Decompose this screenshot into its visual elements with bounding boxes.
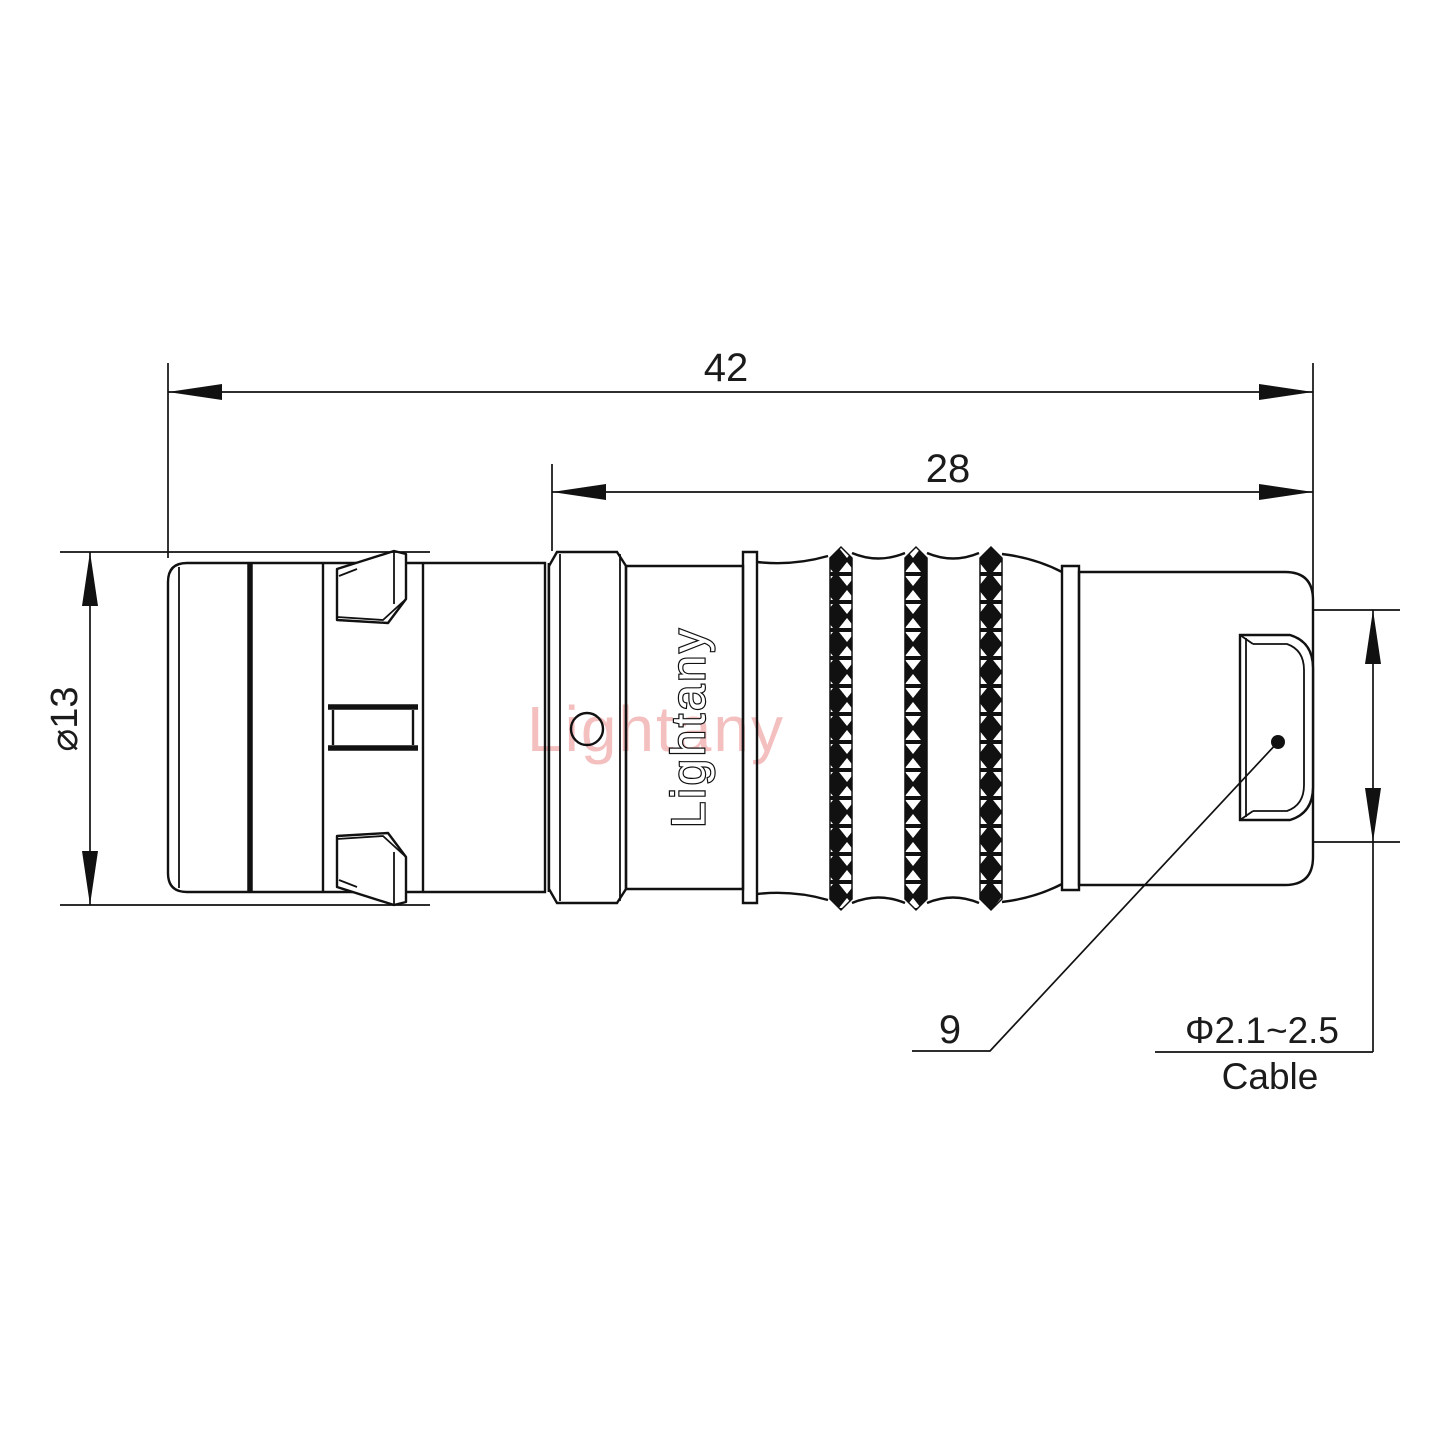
arrow-down-icon	[82, 851, 98, 905]
contact-window	[326, 707, 420, 748]
connector-technical-drawing: Lightany	[0, 0, 1440, 1440]
dimension-total-length: 42	[168, 346, 1313, 400]
dimension-rear-length: 28	[552, 447, 1313, 500]
dimension-rear-length-value: 28	[926, 447, 971, 491]
arrow-right-icon	[1259, 384, 1313, 400]
dimension-outer-diameter-value: ⌀13	[44, 686, 86, 751]
cable-bushing	[1240, 635, 1313, 820]
arrow-up-icon	[82, 552, 98, 606]
brand-watermark: Lightany	[527, 693, 785, 765]
leader-dot	[1271, 735, 1285, 749]
arrow-left-icon	[168, 384, 222, 400]
cable-label: Cable	[1222, 1056, 1319, 1097]
arrow-left-icon	[552, 484, 606, 500]
arrow-down-icon	[1365, 788, 1381, 842]
dimension-total-length-value: 42	[704, 346, 749, 390]
brand-engraving: Lightany	[662, 626, 715, 828]
drawing-canvas: Lightany	[0, 0, 1440, 1440]
arrow-right-icon	[1259, 484, 1313, 500]
cable-diameter-value: Φ2.1~2.5	[1185, 1010, 1339, 1051]
arrow-up-icon	[1365, 610, 1381, 664]
knurl-band-2	[905, 547, 927, 910]
knurl-band-3	[980, 547, 1002, 910]
part-reference-value: 9	[939, 1008, 961, 1052]
latch-key-bottom	[337, 833, 406, 905]
knurl-band-1	[830, 547, 852, 910]
